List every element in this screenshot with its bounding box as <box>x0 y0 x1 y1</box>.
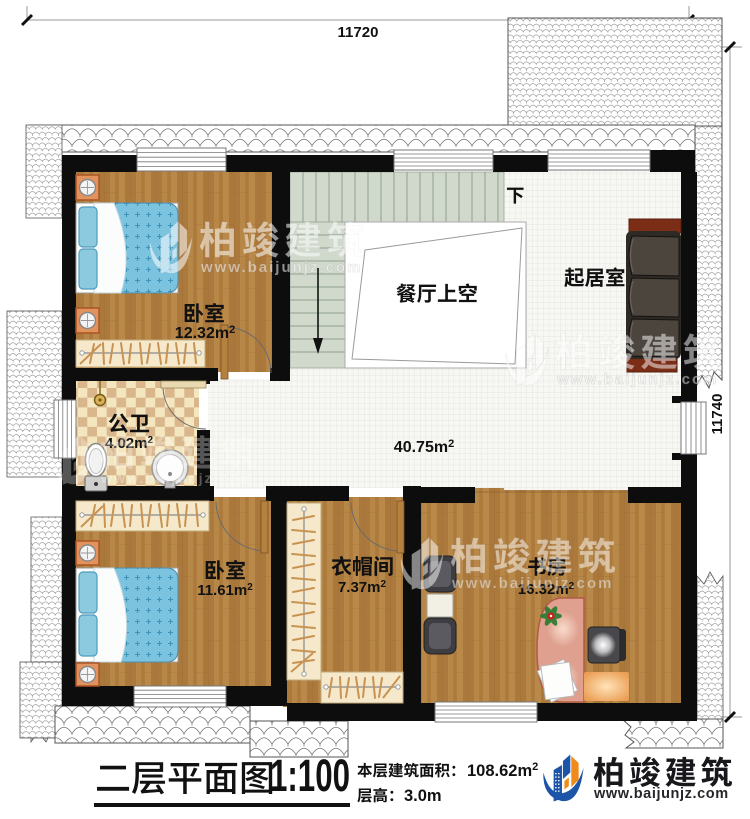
svg-text:11740: 11740 <box>709 394 726 435</box>
svg-text:40.75m2: 40.75m2 <box>394 438 454 456</box>
svg-text:11.61m2: 11.61m2 <box>197 582 253 599</box>
svg-text:12.32m2: 12.32m2 <box>175 324 235 342</box>
svg-text:1:100: 1:100 <box>270 750 350 801</box>
svg-text:www.baijunjz.com: www.baijunjz.com <box>593 786 729 802</box>
svg-text:3.0m: 3.0m <box>404 787 442 805</box>
svg-text:11720: 11720 <box>338 24 379 41</box>
svg-text:108.62m2: 108.62m2 <box>467 761 538 780</box>
svg-text:7.37m2: 7.37m2 <box>338 579 387 596</box>
